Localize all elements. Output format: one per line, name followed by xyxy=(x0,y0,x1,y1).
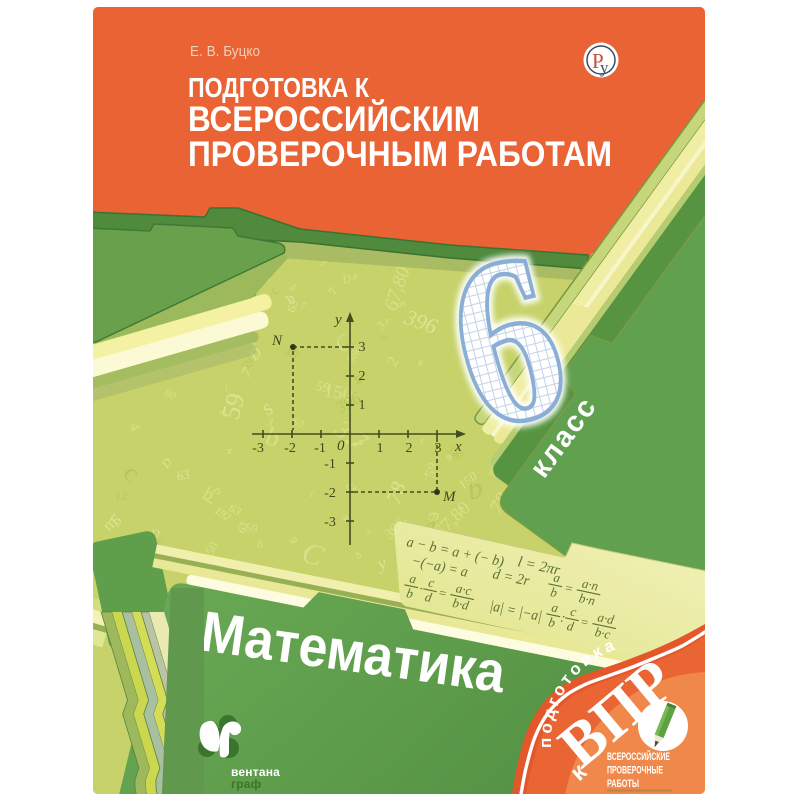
svg-text:-1: -1 xyxy=(324,457,336,472)
svg-text:ВСЕРОССИЙСКИЕ: ВСЕРОССИЙСКИЕ xyxy=(607,750,670,763)
svg-text:8: 8 xyxy=(418,358,423,368)
svg-text:l: l xyxy=(225,383,228,394)
svg-text:-3: -3 xyxy=(252,441,264,456)
svg-text:РАБОТЫ: РАБОТЫ xyxy=(607,778,639,790)
svg-text:2: 2 xyxy=(406,441,413,456)
svg-text:12: 12 xyxy=(115,489,127,503)
svg-text:2: 2 xyxy=(359,369,366,384)
svg-text:ВСЕРОССИЙСКИМ: ВСЕРОССИЙСКИМ xyxy=(188,99,480,139)
svg-text:у: у xyxy=(600,58,609,77)
svg-text:ПОДГОТОВКА К: ПОДГОТОВКА К xyxy=(188,72,370,103)
svg-text:c: c xyxy=(310,489,315,500)
svg-text:-2: -2 xyxy=(284,441,296,456)
svg-text:3: 3 xyxy=(359,340,366,355)
svg-text:y: y xyxy=(333,312,342,328)
svg-text:-1: -1 xyxy=(314,441,326,456)
svg-text:1: 1 xyxy=(359,398,366,413)
svg-text:3: 3 xyxy=(435,441,442,456)
svg-text:Е. В. Буцко: Е. В. Буцко xyxy=(190,43,260,60)
svg-text:ПРОВЕРОЧНЫМ РАБОТАМ: ПРОВЕРОЧНЫМ РАБОТАМ xyxy=(188,135,612,174)
svg-text:x: x xyxy=(454,439,462,455)
svg-text:N: N xyxy=(271,333,283,349)
svg-text:-3: -3 xyxy=(324,515,336,530)
svg-text:-2: -2 xyxy=(324,486,336,501)
svg-text:x: x xyxy=(226,445,232,457)
svg-text:граф: граф xyxy=(231,777,262,791)
svg-text:0: 0 xyxy=(337,438,345,454)
svg-text:1: 1 xyxy=(377,441,384,456)
svg-text:c: c xyxy=(386,316,391,327)
svg-text:ПРОВЕРОЧНЫЕ: ПРОВЕРОЧНЫЕ xyxy=(607,765,663,777)
svg-text:M: M xyxy=(442,489,457,505)
